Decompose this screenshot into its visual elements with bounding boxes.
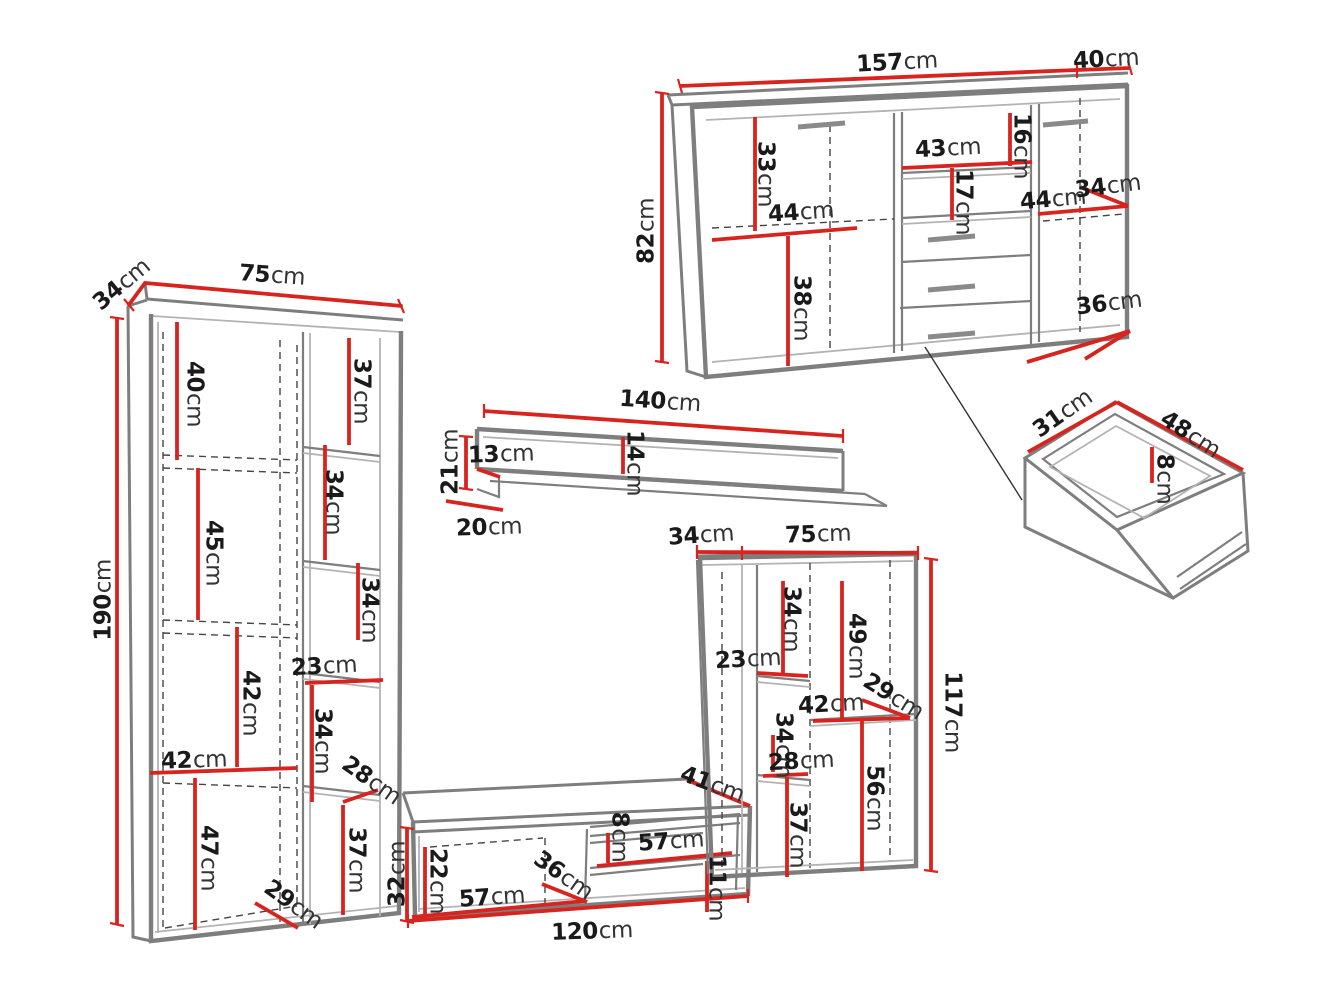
tall-cabinet-dimension-lines bbox=[697, 545, 938, 877]
furniture-dimension-diagram: 157cm40cm82cm33cm44cm38cm43cm16cm17cm44c… bbox=[0, 0, 1341, 1006]
bookcase-dimension-lines bbox=[110, 283, 404, 930]
tall-cabinet-outline bbox=[697, 552, 918, 877]
sideboard-outline bbox=[668, 73, 1128, 377]
wall-shelf-outline bbox=[477, 429, 887, 506]
bookcase-outline bbox=[128, 283, 403, 941]
wall-shelf-dimension-lines bbox=[446, 404, 843, 510]
diagram-linework bbox=[0, 0, 1341, 1006]
drawer-callout-line bbox=[925, 347, 1022, 500]
drawer-outline bbox=[1025, 402, 1248, 598]
